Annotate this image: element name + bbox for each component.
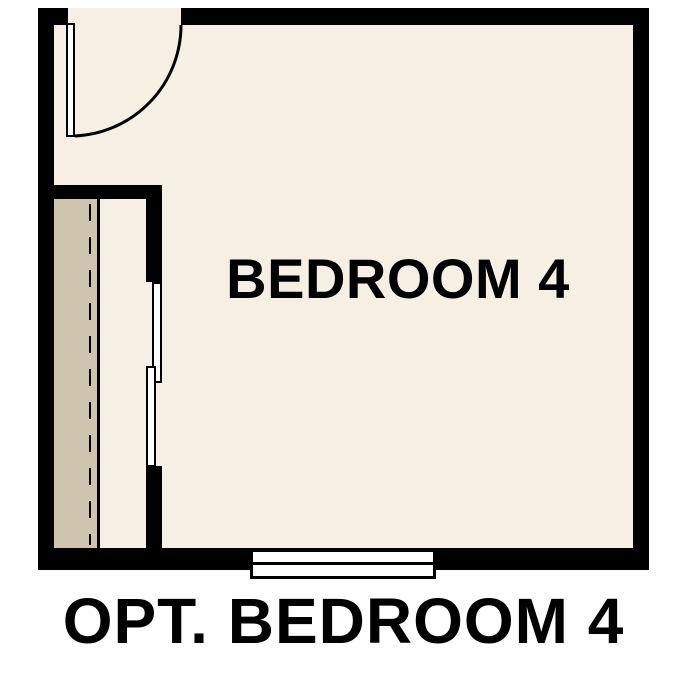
closet-sliding-door-panel-left (146, 366, 156, 467)
door-leaf (66, 23, 75, 137)
closet-wall-right-upper (146, 199, 162, 282)
wall-left (38, 8, 54, 570)
closet-wall-right-lower (146, 466, 162, 548)
plan-caption: OPT. BEDROOM 4 (0, 589, 687, 653)
closet-shelf-edge-line (97, 199, 100, 548)
window-divider-line (253, 562, 433, 565)
door-opening (68, 8, 181, 25)
window (250, 549, 436, 579)
closet-wall-top (54, 185, 162, 199)
closet-rod-dashed-line (89, 204, 91, 545)
floorplan-canvas: BEDROOM 4 OPT. BEDROOM 4 (0, 0, 687, 687)
wall-right (633, 8, 649, 570)
room-label: BEDROOM 4 (162, 251, 634, 307)
closet-shelf-area (54, 199, 97, 548)
